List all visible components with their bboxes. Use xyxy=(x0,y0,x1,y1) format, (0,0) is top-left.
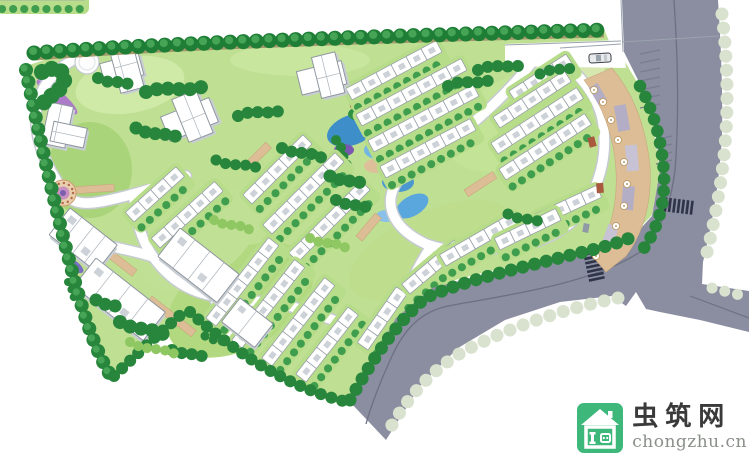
watermark-brand-name: 虫筑网 xyxy=(632,404,747,431)
house-logo-icon xyxy=(577,403,623,453)
watermark-text: 虫筑网 chongzhu.cn xyxy=(632,404,747,451)
site-plan-image: 虫筑网 chongzhu.cn xyxy=(0,0,749,457)
car xyxy=(589,53,611,63)
site-plan-drawing xyxy=(0,0,749,457)
watermark: 虫筑网 chongzhu.cn xyxy=(577,403,747,453)
watermark-brand-url: chongzhu.cn xyxy=(632,432,747,452)
